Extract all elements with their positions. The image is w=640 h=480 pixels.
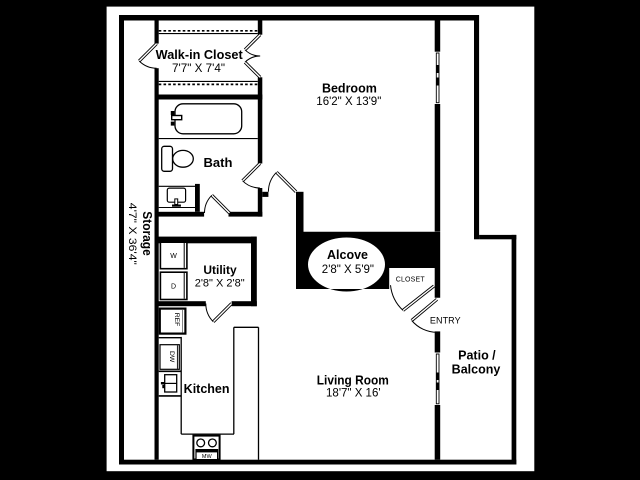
svg-text:Alcove: Alcove [327,248,368,262]
svg-text:DW: DW [168,351,175,363]
svg-text:MW: MW [202,454,213,460]
svg-text:W: W [170,253,177,260]
svg-text:Patio /: Patio / [458,348,496,362]
svg-text:Utility: Utility [203,263,237,277]
svg-text:16'2" X 13'9": 16'2" X 13'9" [316,96,381,108]
svg-text:D: D [171,284,176,291]
svg-text:18'7" X 16': 18'7" X 16' [326,387,381,399]
svg-text:7'7" X 7'4": 7'7" X 7'4" [172,63,225,75]
svg-text:CLOSET: CLOSET [396,276,426,283]
svg-text:Kitchen: Kitchen [184,382,230,396]
svg-text:ENTRY: ENTRY [430,315,461,325]
svg-text:4'7" X 36'4": 4'7" X 36'4" [126,203,138,265]
svg-text:Bath: Bath [204,155,233,170]
svg-text:Walk-in Closet: Walk-in Closet [156,48,244,62]
svg-text:Balcony: Balcony [452,363,501,377]
svg-text:Living Room: Living Room [317,373,389,388]
svg-text:REF: REF [173,313,180,327]
svg-text:Storage: Storage [140,211,154,256]
svg-text:2'8" X 2'8": 2'8" X 2'8" [195,277,245,289]
svg-text:Bedroom: Bedroom [322,82,377,96]
svg-text:2'8" X 5'9": 2'8" X 5'9" [322,264,374,276]
